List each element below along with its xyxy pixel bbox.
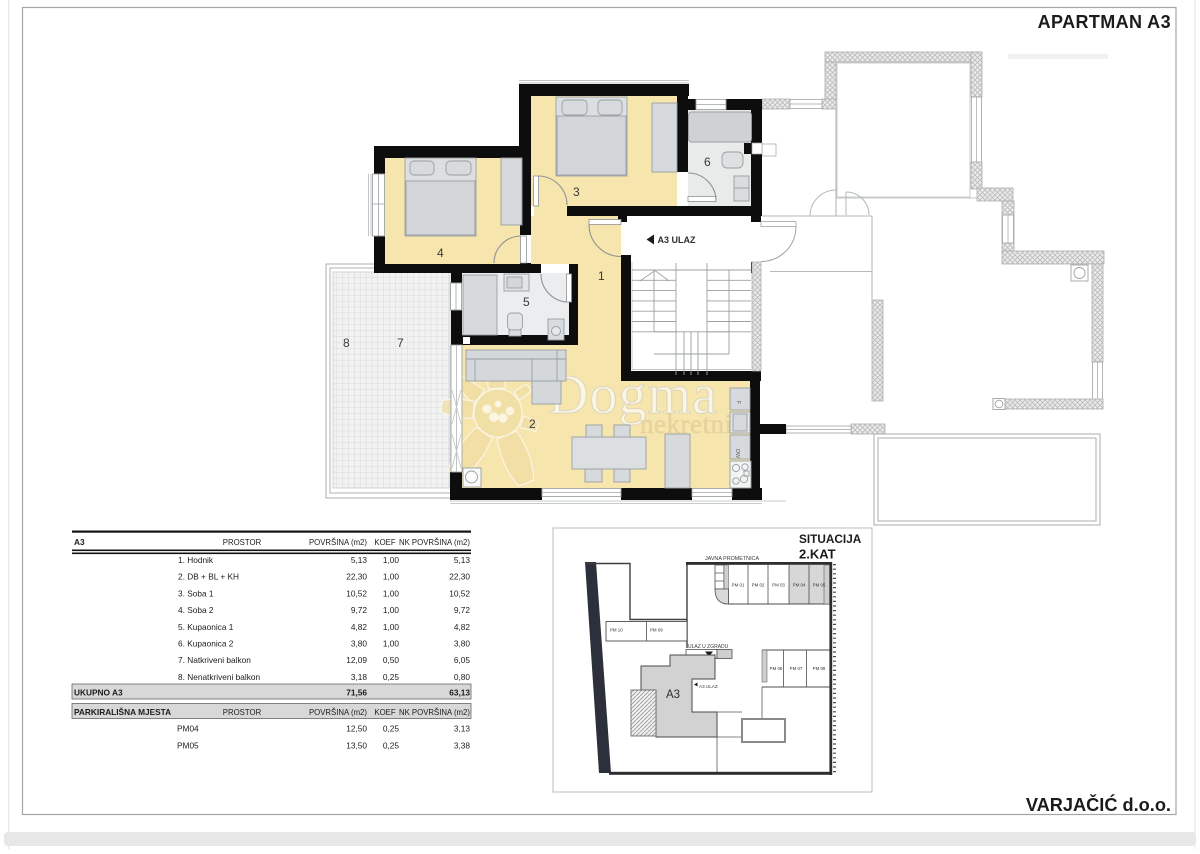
svg-text:A3: A3 (74, 537, 85, 547)
svg-text:DW: DW (734, 449, 740, 459)
svg-text:UKUPNO A3: UKUPNO A3 (74, 688, 123, 698)
svg-text:KOEF: KOEF (374, 708, 395, 717)
svg-text:F: F (735, 401, 741, 404)
svg-text:JAVNA PROMETNICA: JAVNA PROMETNICA (705, 556, 760, 562)
svg-text:1,00: 1,00 (383, 588, 400, 598)
svg-text:0,25: 0,25 (383, 741, 400, 751)
svg-text:8. Nenatkriveni balkon: 8. Nenatkriveni balkon (178, 672, 260, 682)
svg-text:1,00: 1,00 (383, 572, 400, 582)
svg-text:22,30: 22,30 (449, 572, 470, 582)
svg-text:1,00: 1,00 (383, 555, 400, 565)
svg-text:7. Natkriveni balkon: 7. Natkriveni balkon (178, 655, 251, 665)
svg-text:POVRŠINA (m2): POVRŠINA (m2) (309, 708, 367, 717)
svg-text:8: 8 (343, 336, 350, 350)
svg-text:5. Kupaonica 1: 5. Kupaonica 1 (178, 622, 234, 632)
svg-text:0,25: 0,25 (383, 724, 400, 734)
svg-text:6: 6 (704, 155, 711, 169)
svg-text:PROSTOR: PROSTOR (223, 708, 262, 717)
svg-text:KOEF: KOEF (374, 538, 395, 547)
svg-text:0,50: 0,50 (383, 655, 400, 665)
svg-text:10,52: 10,52 (449, 588, 470, 598)
svg-text:A3 ULAZ: A3 ULAZ (658, 235, 697, 245)
svg-text:1: 1 (598, 269, 605, 283)
svg-text:71,56: 71,56 (346, 688, 367, 698)
svg-text:3,13: 3,13 (454, 724, 471, 734)
svg-text:A3 ULAZ: A3 ULAZ (699, 684, 718, 689)
svg-text:2: 2 (529, 417, 536, 431)
svg-text:3,18: 3,18 (351, 672, 368, 682)
svg-text:PM 09: PM 09 (650, 628, 663, 633)
svg-text:9,72: 9,72 (454, 605, 471, 615)
svg-text:PM 10: PM 10 (610, 628, 623, 633)
svg-text:12,09: 12,09 (346, 655, 367, 665)
svg-text:PM 03: PM 03 (772, 583, 785, 588)
svg-text:PM 08: PM 08 (813, 666, 826, 671)
svg-text:1. Hodnik: 1. Hodnik (178, 555, 214, 565)
svg-text:2. DB + BL + KH: 2. DB + BL + KH (178, 572, 239, 582)
svg-text:6,05: 6,05 (454, 655, 471, 665)
svg-text:4,82: 4,82 (351, 622, 368, 632)
svg-text:4. Soba 2: 4. Soba 2 (178, 605, 214, 615)
svg-text:5,13: 5,13 (454, 555, 471, 565)
svg-text:PROSTOR: PROSTOR (223, 538, 262, 547)
svg-text:PM05: PM05 (177, 741, 199, 751)
svg-text:63,13: 63,13 (449, 688, 470, 698)
svg-text:0,25: 0,25 (383, 672, 400, 682)
svg-text:4,82: 4,82 (454, 622, 471, 632)
svg-text:1,00: 1,00 (383, 639, 400, 649)
svg-text:PM 02: PM 02 (752, 583, 765, 588)
svg-text:PM04: PM04 (177, 724, 199, 734)
svg-text:3,80: 3,80 (351, 639, 368, 649)
svg-text:5: 5 (523, 295, 530, 309)
svg-text:PM 04: PM 04 (793, 583, 806, 588)
svg-text:VARJAČIĆ d.o.o.: VARJAČIĆ d.o.o. (1026, 794, 1171, 815)
svg-text:PARKIRALIŠNA MJESTA: PARKIRALIŠNA MJESTA (74, 706, 171, 717)
svg-text:PM 07: PM 07 (790, 666, 803, 671)
svg-text:3: 3 (573, 185, 580, 199)
svg-text:SITUACIJA: SITUACIJA (799, 532, 862, 546)
svg-text:10,52: 10,52 (346, 588, 367, 598)
svg-text:6. Kupaonica 2: 6. Kupaonica 2 (178, 639, 234, 649)
svg-text:0,80: 0,80 (454, 672, 471, 682)
svg-text:3. Soba 1: 3. Soba 1 (178, 588, 214, 598)
svg-text:22,30: 22,30 (346, 572, 367, 582)
svg-text:A3: A3 (666, 689, 680, 701)
svg-text:12,50: 12,50 (346, 724, 367, 734)
svg-text:PM 05: PM 05 (813, 583, 826, 588)
svg-text:PM 06: PM 06 (770, 666, 783, 671)
svg-text:5,13: 5,13 (351, 555, 368, 565)
svg-text:4: 4 (437, 246, 444, 260)
svg-text:3,38: 3,38 (454, 741, 471, 751)
svg-text:9,72: 9,72 (351, 605, 368, 615)
svg-text:1,00: 1,00 (383, 622, 400, 632)
svg-text:ULAZ U ZGRADU: ULAZ U ZGRADU (688, 644, 729, 650)
svg-text:2.KAT: 2.KAT (799, 547, 836, 562)
svg-text:PM 01: PM 01 (732, 583, 745, 588)
svg-text:APARTMAN A3: APARTMAN A3 (1038, 12, 1171, 32)
svg-text:7: 7 (397, 336, 404, 350)
svg-text:1,00: 1,00 (383, 605, 400, 615)
svg-text:NK POVRŠINA (m2): NK POVRŠINA (m2) (399, 708, 470, 717)
svg-text:NK POVRŠINA (m2): NK POVRŠINA (m2) (399, 538, 470, 547)
svg-text:13,50: 13,50 (346, 741, 367, 751)
svg-text:POVRŠINA (m2): POVRŠINA (m2) (309, 538, 367, 547)
svg-text:3,80: 3,80 (454, 639, 471, 649)
